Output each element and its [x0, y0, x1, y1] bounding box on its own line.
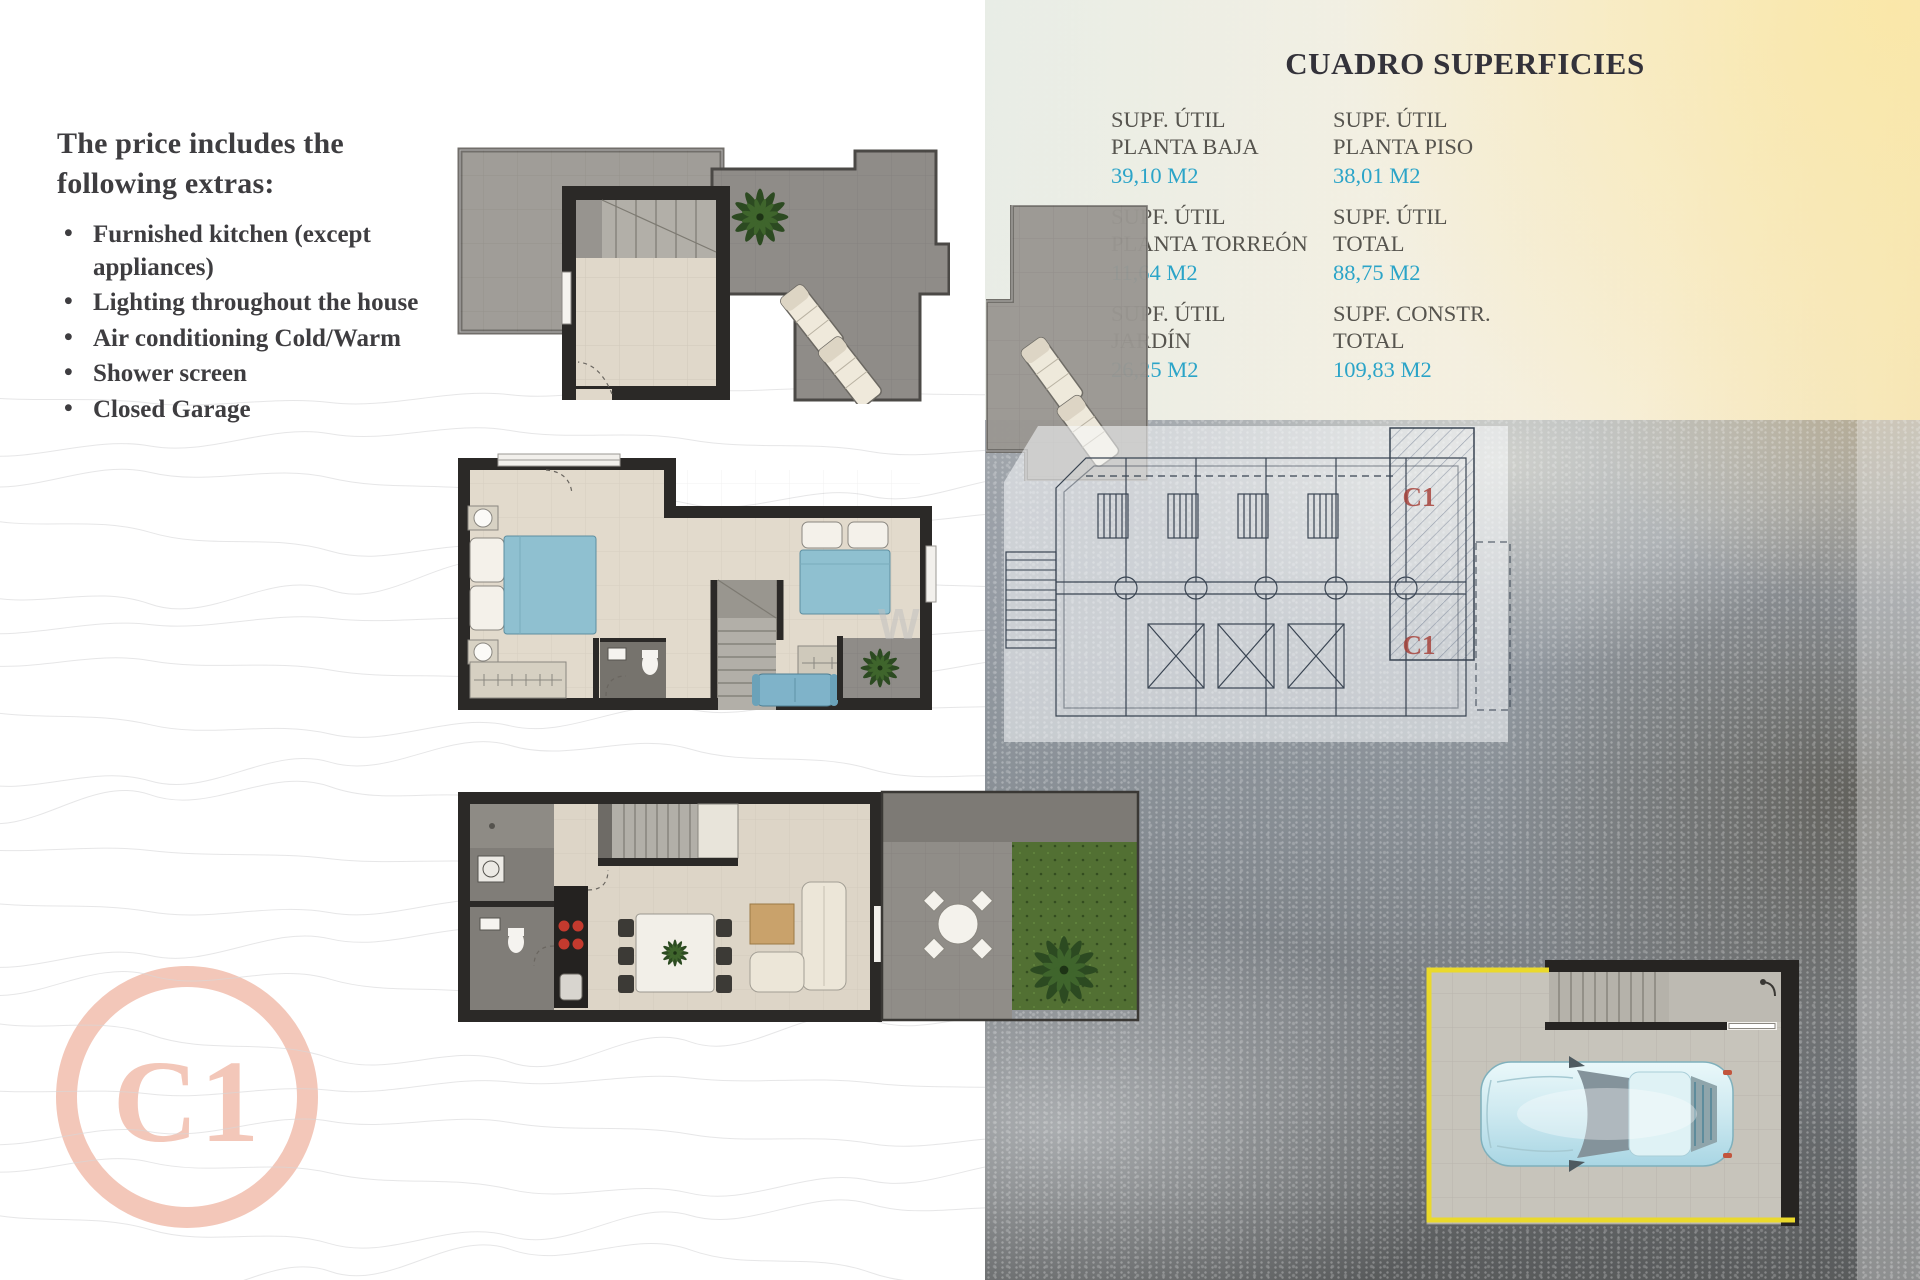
surface-value: 38,01 M2 — [1333, 162, 1555, 189]
wardrobe — [470, 662, 566, 698]
floor-plan-ground-floor — [450, 786, 1145, 1028]
surface-value: 109,83 M2 — [1333, 356, 1555, 383]
extras-item: Closed Garage — [57, 394, 462, 427]
right-frost-strip — [1857, 270, 1920, 1280]
surface-value: 88,75 M2 — [1333, 259, 1555, 286]
surface-cell-planta-baja: SUPF. ÚTIL PLANTA BAJA 39,10 M2 — [1111, 106, 1333, 203]
sofa-blue — [752, 674, 838, 706]
surface-cell-planta-piso: SUPF. ÚTIL PLANTA PISO 38,01 M2 — [1333, 106, 1555, 203]
site-plan: C1 C1 — [998, 424, 1513, 746]
garage-plan — [1419, 960, 1817, 1232]
unit-badge-label: C1 — [113, 1033, 261, 1161]
garden-grass — [1012, 842, 1138, 1010]
extras-list: Furnished kitchen (except appliances) Li… — [57, 219, 462, 426]
surfaces-title: CUADRO SUPERFICIES — [1085, 46, 1845, 82]
site-plan-unit-label: C1 — [1403, 630, 1436, 660]
floor-plan-first-floor — [450, 450, 940, 718]
stairs — [598, 804, 738, 866]
car-top-view — [1481, 1056, 1733, 1172]
unit-badge-circle: C1 — [56, 966, 318, 1228]
bathroom — [596, 638, 666, 698]
photo-watermark: W — [878, 600, 920, 650]
extras-item: Furnished kitchen (except appliances) — [57, 219, 462, 284]
brochure-page: The price includes the following extras:… — [0, 0, 1920, 1280]
kitchen — [554, 886, 588, 1008]
extras-item: Air conditioning Cold/Warm — [57, 323, 462, 356]
site-plan-unit-label: C1 — [1403, 482, 1436, 512]
sea-photo-panel: CUADRO SUPERFICIES SUPF. ÚTIL PLANTA BAJ… — [985, 0, 1920, 1280]
surface-value: 39,10 M2 — [1111, 162, 1333, 189]
surface-cell-util-total: SUPF. ÚTIL TOTAL 88,75 M2 — [1333, 203, 1555, 300]
utility-rooms — [470, 804, 554, 1010]
surfaces-table: SUPF. ÚTIL PLANTA BAJA 39,10 M2 SUPF. ÚT… — [1111, 106, 1555, 397]
extras-item: Shower screen — [57, 358, 462, 391]
extras-item: Lighting throughout the house — [57, 287, 462, 320]
surface-cell-constr-total: SUPF. CONSTR. TOTAL 109,83 M2 — [1333, 300, 1555, 397]
extras-section: The price includes the following extras:… — [57, 124, 462, 429]
extras-title: The price includes the following extras: — [57, 124, 462, 203]
garage-door — [1729, 1024, 1775, 1029]
floor-plan-torreon — [450, 142, 950, 404]
site-plan-unit-c1-hatch — [1390, 428, 1474, 660]
